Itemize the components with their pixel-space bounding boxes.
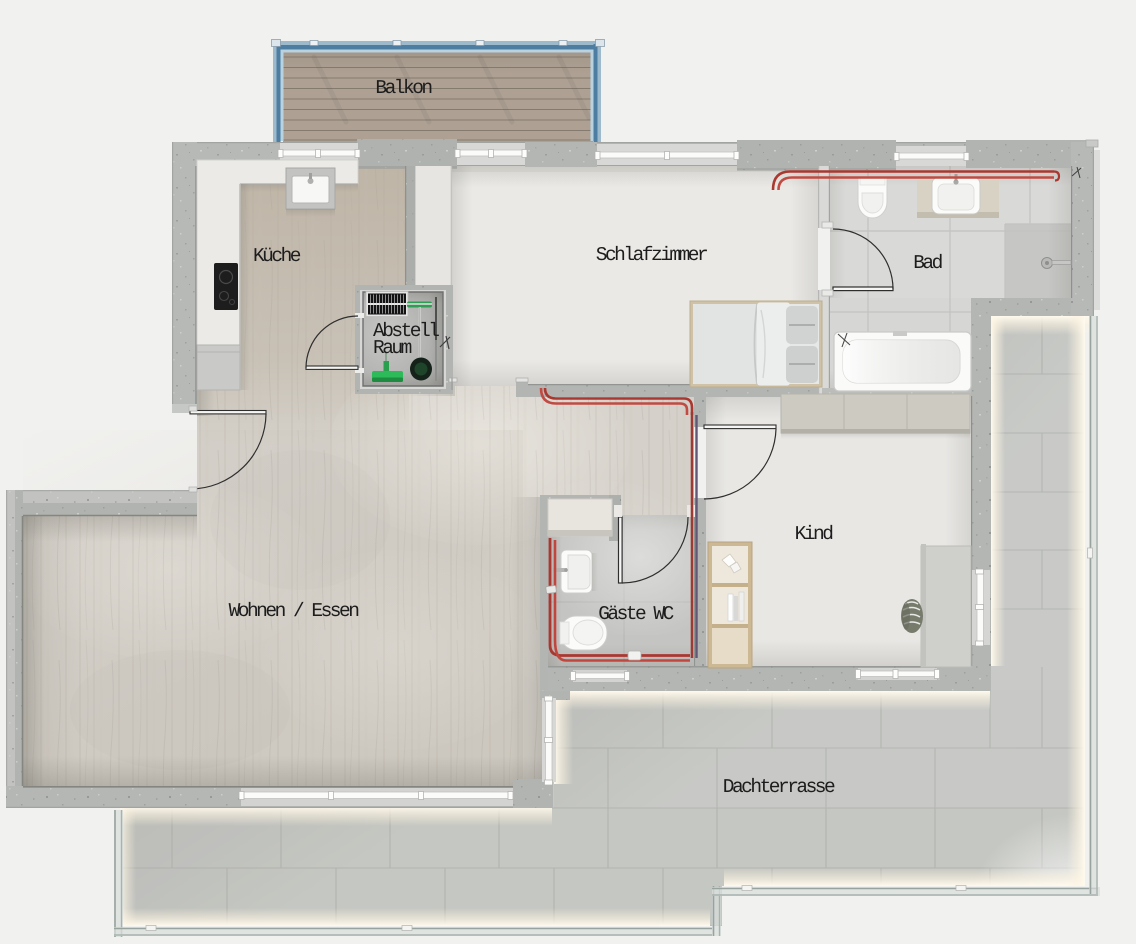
svg-text:Kind: Kind <box>795 523 833 545</box>
svg-text:Bad: Bad <box>913 252 941 274</box>
svg-text:Küche: Küche <box>253 245 301 267</box>
svg-text:Gäste WC: Gäste WC <box>598 603 673 625</box>
svg-text:Balkon: Balkon <box>375 77 431 99</box>
svg-text:Schlafzimmer: Schlafzimmer <box>596 244 707 266</box>
svg-text:Wohnen / Essen: Wohnen / Essen <box>229 600 359 622</box>
svg-text:Dachterrasse: Dachterrasse <box>723 776 835 798</box>
svg-text:Raum: Raum <box>373 337 412 359</box>
